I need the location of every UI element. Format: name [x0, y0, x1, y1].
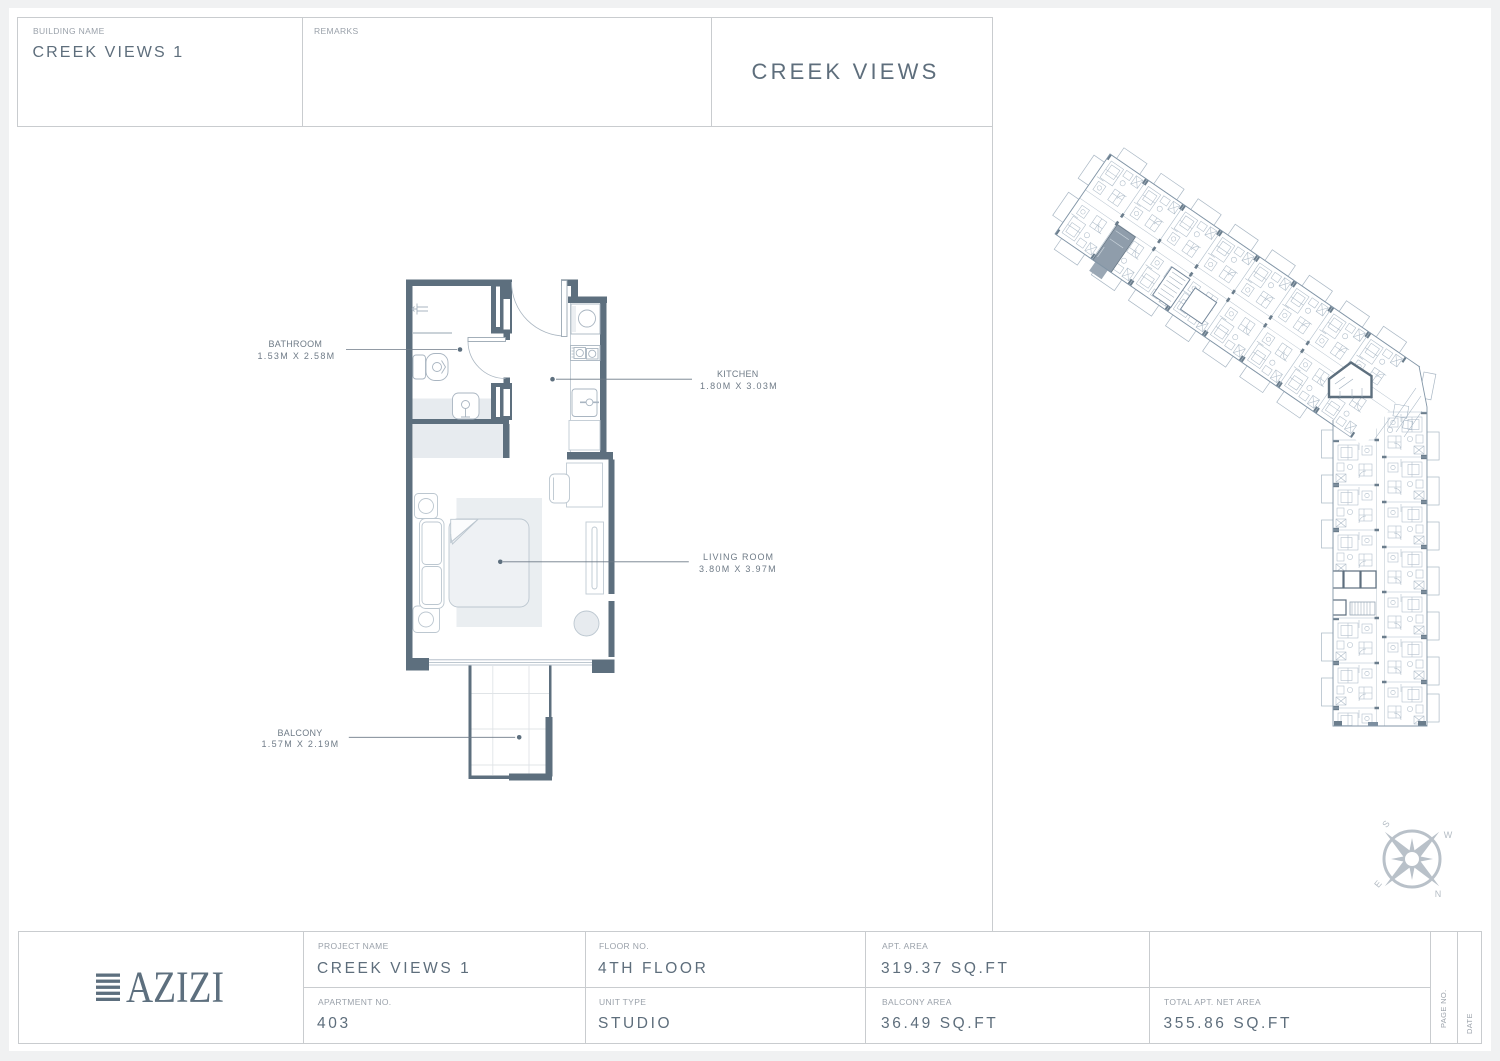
svg-text:W: W	[1444, 830, 1453, 840]
svg-text:N: N	[1435, 889, 1442, 899]
svg-text:E: E	[1372, 878, 1384, 889]
svg-text:S: S	[1380, 818, 1392, 829]
